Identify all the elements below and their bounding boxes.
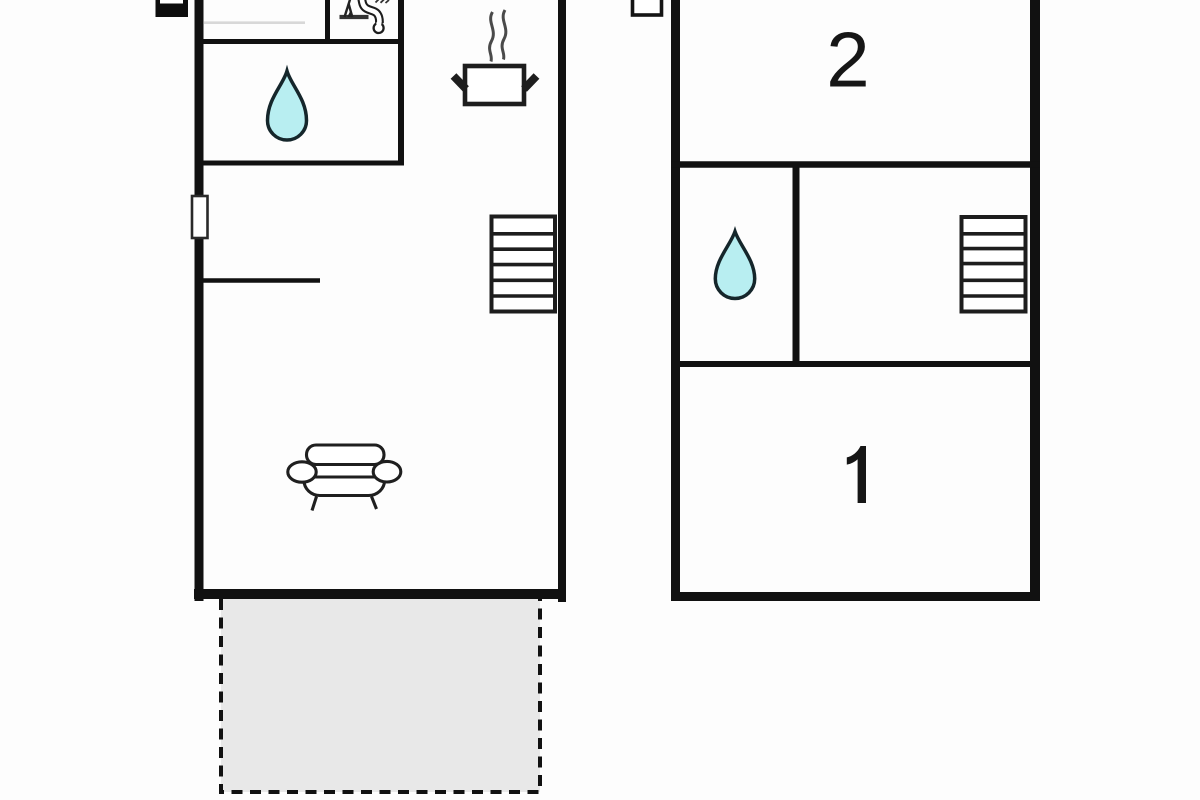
svg-text:2: 2: [826, 16, 869, 104]
